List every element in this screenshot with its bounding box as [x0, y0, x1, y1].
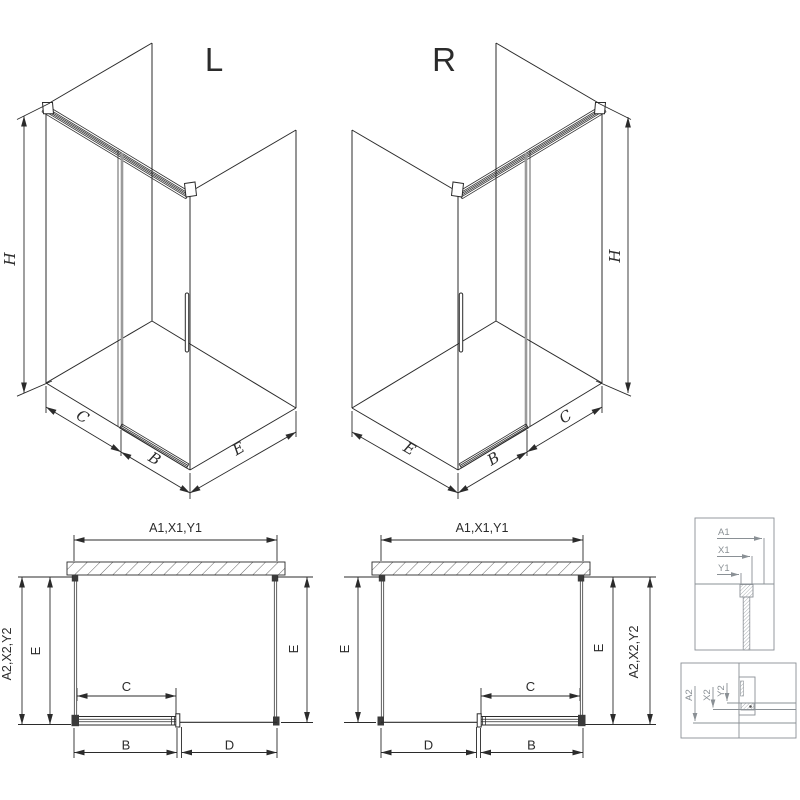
- plan-label-a2: A2,X2,Y2: [0, 628, 14, 681]
- plan-label-a1: A1,X1,Y1: [149, 521, 202, 535]
- detail-wall-profile-block: [740, 585, 753, 598]
- plan-door-right: [477, 714, 585, 727]
- variant-label-right: R: [432, 41, 456, 78]
- rail-bracket-corner-right: [452, 182, 464, 197]
- variant-label-left: L: [205, 41, 223, 78]
- dim-e-left: E: [190, 411, 296, 493]
- plan-dim-e-right-inner: E: [277, 577, 313, 723]
- plan-dim-a2-left: A2,X2,Y2: [0, 577, 22, 725]
- top-rail-left: [42, 103, 197, 199]
- detail-label-y1: Y1: [718, 563, 730, 574]
- plan-view-right: A1,X1,Y1 E E A2,X2,Y2: [337, 521, 656, 758]
- plan-view-left: A1,X1,Y1 E A2,X2,Y2 E: [0, 521, 313, 758]
- dim-h-left: H: [1, 103, 52, 396]
- sliding-door-left: [118, 150, 189, 468]
- plan-dim-d-left: D: [182, 727, 278, 758]
- plan-label-e-left: E: [28, 646, 43, 655]
- top-rail-right: [452, 103, 607, 199]
- detail-label-x2: X2: [702, 689, 713, 701]
- plan-door-left: [72, 714, 180, 727]
- view-3d-right: R H E B: [352, 41, 631, 499]
- plan-label-a1-right: A1,X1,Y1: [456, 521, 509, 535]
- detail-roller-dot: [749, 705, 752, 708]
- detail-glass-vertical: [741, 681, 744, 696]
- plan-label-b-right: B: [527, 738, 536, 753]
- plan-dim-e-right-view-left: E: [337, 577, 380, 723]
- plan-dim-e-right-view-right: E: [583, 577, 656, 725]
- door-handle: [185, 293, 188, 352]
- plan-label-c: C: [122, 679, 131, 694]
- plan-dim-c-left: C: [77, 679, 176, 714]
- rail-bracket-corner: [185, 182, 197, 197]
- wall-hatch-left: [67, 562, 285, 575]
- plan-dim-d-right: D: [381, 727, 477, 758]
- dim-label-e: E: [228, 438, 247, 460]
- detail-label-a2: A2: [684, 689, 695, 701]
- dim-label-h-right: H: [606, 249, 624, 264]
- dim-b-right: B: [458, 430, 527, 499]
- wall-hatch-right: [372, 562, 590, 575]
- technical-drawing-shower-enclosure: L H C: [0, 0, 800, 800]
- detail-bottom-rail: [741, 703, 754, 710]
- detail-box-wall-profile: A1 X1 Y1: [695, 518, 774, 650]
- dim-c-right: C: [527, 386, 602, 452]
- dim-e-right: E: [352, 411, 458, 493]
- plan-label-d-right: D: [424, 738, 433, 753]
- sliding-door-right: [459, 150, 530, 468]
- detail-label-y2: Y2: [716, 685, 727, 697]
- view-3d-left: L H C: [1, 41, 296, 499]
- detail-box-floor-profile: A2 X2 Y2: [681, 663, 796, 738]
- plan-label-c-right: C: [526, 679, 535, 694]
- plan-label-e-rv-left: E: [337, 644, 352, 653]
- plan-dim-e-left-inner: E: [18, 577, 73, 725]
- plan-dim-c-right: C: [481, 679, 580, 714]
- dim-label-e-right: E: [399, 438, 418, 460]
- detail-label-a1: A1: [718, 527, 730, 538]
- plan-dim-b-right: B: [481, 728, 584, 758]
- dim-h-right: H: [596, 103, 631, 396]
- plan-label-d: D: [225, 738, 234, 753]
- plan-dim-b-left: B: [74, 728, 177, 758]
- plan-label-e-rv-right: E: [591, 643, 606, 652]
- detail-label-x1: X1: [718, 545, 730, 556]
- dim-label-h: H: [1, 252, 19, 267]
- plan-dim-a1-left: A1,X1,Y1: [74, 521, 277, 561]
- plan-label-e-right: E: [286, 644, 301, 653]
- plan-dim-a1-right: A1,X1,Y1: [381, 521, 583, 561]
- drawing-svg: L H C: [0, 0, 800, 800]
- door-handle-right: [459, 293, 462, 352]
- plan-label-b: B: [122, 738, 131, 753]
- dim-b-left: B: [121, 448, 190, 499]
- plan-label-a2-right: A2,X2,Y2: [627, 626, 641, 679]
- plan-dim-a2-right: A2,X2,Y2: [627, 577, 650, 725]
